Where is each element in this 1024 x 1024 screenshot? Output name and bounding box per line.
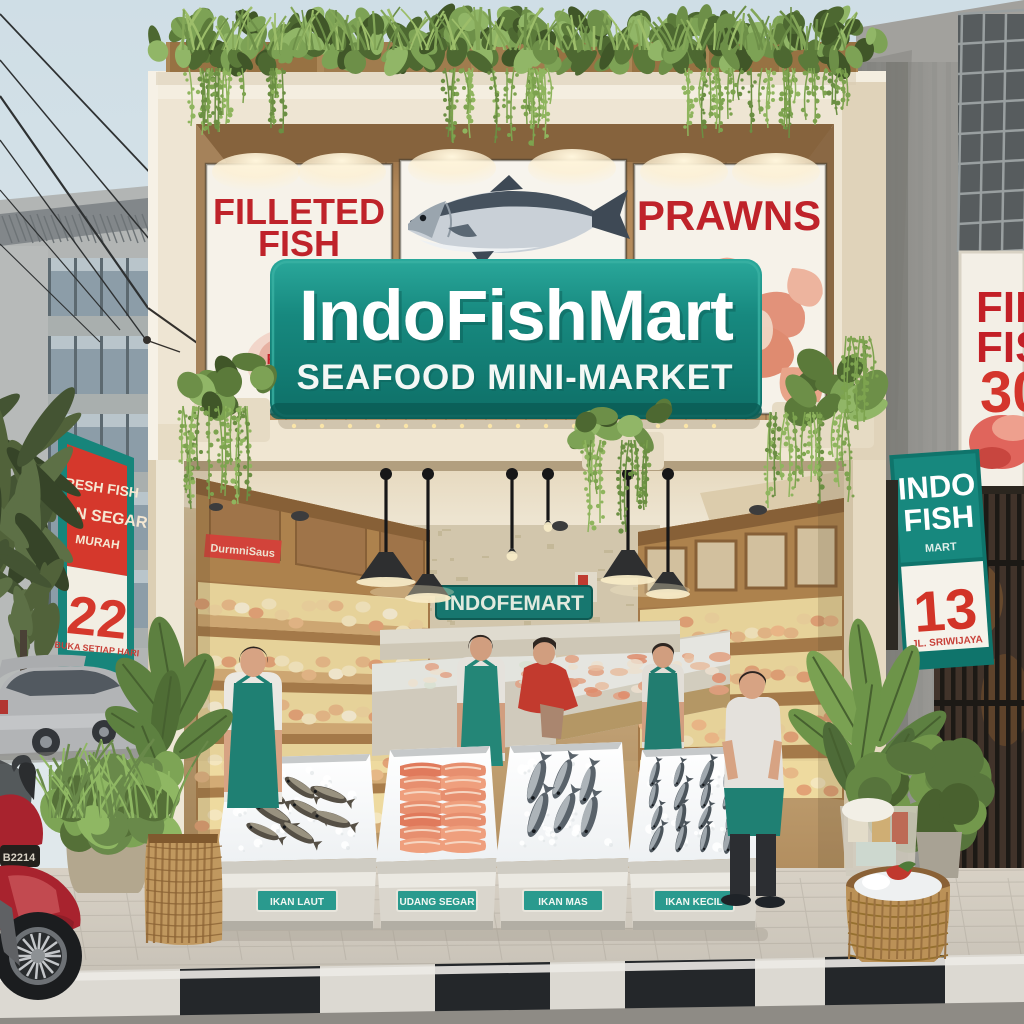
svg-text:FISH: FISH (258, 223, 340, 264)
svg-text:B2214: B2214 (3, 852, 36, 864)
svg-text:IKAN MAS: IKAN MAS (538, 897, 588, 908)
svg-text:IndoFishMart: IndoFishMart (299, 277, 733, 356)
svg-text:PRAWNS: PRAWNS (637, 192, 821, 239)
svg-text:MART: MART (925, 541, 958, 555)
svg-text:IKAN LAUT: IKAN LAUT (270, 897, 324, 908)
svg-text:IKAN KECIL: IKAN KECIL (665, 897, 722, 908)
svg-text:SEAFOOD MINI-MARKET: SEAFOOD MINI-MARKET (296, 358, 733, 397)
svg-text:FISH: FISH (902, 499, 975, 539)
svg-text:UDANG SEGAR: UDANG SEGAR (399, 897, 475, 908)
